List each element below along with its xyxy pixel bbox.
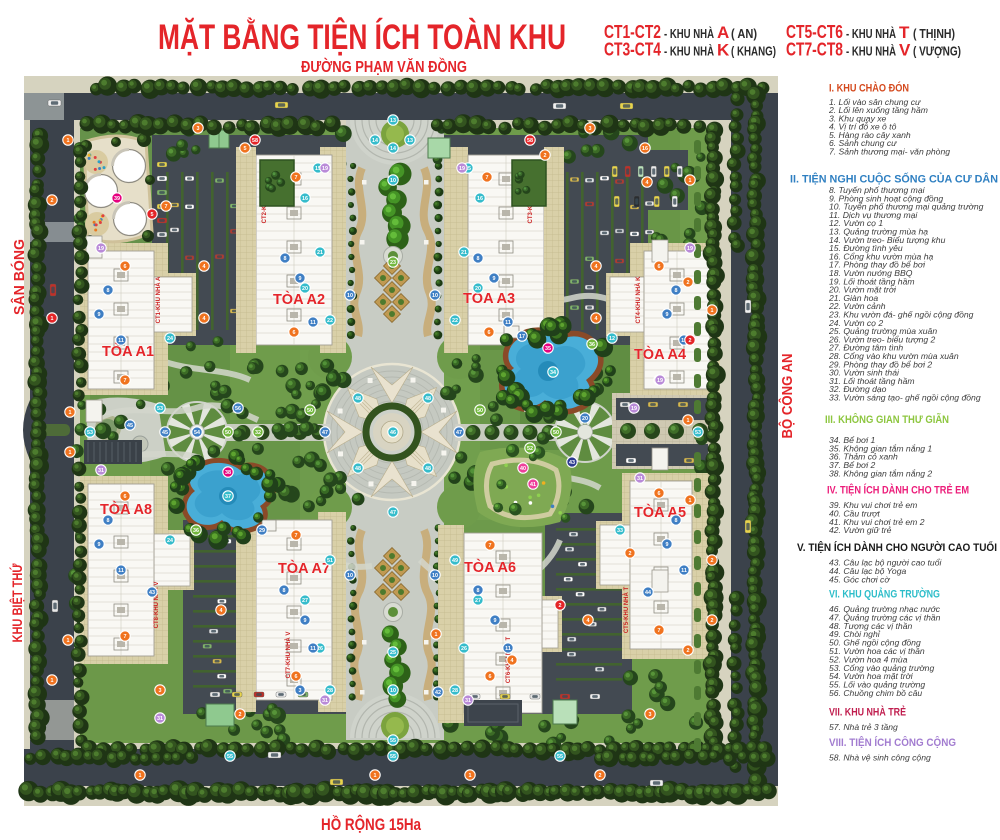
svg-text:HỒ RỘNG 15Ha: HỒ RỘNG 15Ha (321, 815, 422, 834)
svg-text:46: 46 (390, 430, 396, 436)
svg-text:36: 36 (589, 342, 595, 348)
svg-text:1: 1 (67, 138, 70, 144)
svg-text:KHU BIỆT THỨ: KHU BIỆT THỨ (10, 563, 25, 643)
svg-text:CT3-CT4: CT3-CT4 (604, 40, 661, 60)
svg-text:22: 22 (452, 318, 458, 324)
svg-text:4: 4 (587, 618, 590, 624)
svg-text:6: 6 (658, 264, 661, 270)
svg-text:TÒA A3: TÒA A3 (463, 289, 515, 307)
svg-text:32: 32 (255, 430, 261, 436)
svg-text:20: 20 (475, 286, 481, 292)
svg-text:2: 2 (51, 198, 54, 204)
svg-text:21: 21 (317, 250, 323, 256)
svg-text:26: 26 (461, 646, 467, 652)
svg-text:21: 21 (461, 250, 467, 256)
svg-text:T: T (899, 23, 910, 42)
svg-text:47: 47 (390, 510, 396, 516)
svg-text:II. TIỆN NGHI CUỘC SỐNG CỦA CƯ: II. TIỆN NGHI CUỘC SỐNG CỦA CƯ DÂN (790, 172, 998, 186)
svg-text:56: 56 (235, 406, 241, 412)
svg-text:11: 11 (310, 320, 316, 326)
svg-text:7: 7 (124, 634, 127, 640)
svg-text:48: 48 (425, 396, 431, 402)
svg-text:9: 9 (98, 542, 101, 548)
svg-text:TÒA A1: TÒA A1 (102, 342, 154, 360)
svg-text:38: 38 (225, 470, 231, 476)
svg-text:47: 47 (456, 430, 462, 436)
svg-text:SÂN BÓNG: SÂN BÓNG (10, 239, 28, 315)
svg-text:31: 31 (98, 468, 104, 474)
svg-text:36: 36 (193, 528, 199, 534)
svg-text:13: 13 (407, 138, 413, 144)
svg-text:6: 6 (124, 494, 127, 500)
svg-text:11: 11 (310, 646, 316, 652)
svg-text:3: 3 (649, 712, 652, 718)
svg-text:10: 10 (390, 178, 396, 184)
svg-text:8: 8 (107, 518, 110, 524)
svg-text:9: 9 (304, 618, 307, 624)
svg-text:31: 31 (637, 476, 643, 482)
svg-text:52: 52 (527, 446, 533, 452)
svg-text:ĐƯỜNG PHẠM VĂN ĐỒNG: ĐƯỜNG PHẠM VĂN ĐỒNG (301, 57, 467, 76)
svg-text:2: 2 (711, 558, 714, 564)
svg-text:- KHU NHÀ: - KHU NHÀ (664, 44, 714, 59)
svg-text:1: 1 (689, 498, 692, 504)
svg-text:1: 1 (51, 316, 54, 322)
svg-text:42. Vườn giữ trẻ: 42. Vườn giữ trẻ (829, 525, 892, 535)
svg-text:25: 25 (390, 650, 396, 656)
svg-text:1: 1 (69, 410, 72, 416)
svg-text:41: 41 (530, 482, 536, 488)
svg-text:45. Góc chơi cờ: 45. Góc chơi cờ (829, 574, 890, 584)
svg-text:1: 1 (689, 178, 692, 184)
svg-text:19: 19 (657, 378, 663, 384)
svg-text:20: 20 (302, 286, 308, 292)
svg-text:7: 7 (124, 378, 127, 384)
svg-text:24: 24 (167, 336, 173, 342)
svg-text:I. KHU CHÀO ĐÓN: I. KHU CHÀO ĐÓN (829, 82, 909, 95)
svg-text:13: 13 (390, 118, 396, 124)
svg-text:9: 9 (494, 618, 497, 624)
svg-text:- KHU NHÀ: - KHU NHÀ (846, 26, 896, 41)
svg-text:14: 14 (372, 138, 378, 144)
svg-text:7: 7 (295, 533, 298, 539)
svg-text:28: 28 (452, 688, 458, 694)
svg-text:56. Chuồng chim bồ câu: 56. Chuồng chim bồ câu (829, 688, 922, 698)
svg-text:( AN): ( AN) (731, 27, 757, 41)
svg-text:1: 1 (139, 773, 142, 779)
svg-text:45: 45 (127, 423, 133, 429)
svg-text:2: 2 (544, 153, 547, 159)
svg-text:50: 50 (307, 408, 313, 414)
svg-text:8: 8 (675, 288, 678, 294)
svg-text:6: 6 (489, 674, 492, 680)
svg-text:IV. TIỆN ÍCH DÀNH CHO TRẺ EM: IV. TIỆN ÍCH DÀNH CHO TRẺ EM (827, 484, 969, 497)
svg-text:3: 3 (159, 688, 162, 694)
svg-text:V. TIỆN ÍCH DÀNH CHO NGƯỜI CAO: V. TIỆN ÍCH DÀNH CHO NGƯỜI CAO TUỔI (797, 541, 997, 554)
svg-text:VIII. TIỆN ÍCH CÔNG CỘNG: VIII. TIỆN ÍCH CÔNG CỘNG (829, 736, 956, 749)
svg-text:17: 17 (519, 334, 525, 340)
svg-text:35: 35 (545, 346, 551, 352)
svg-text:9: 9 (666, 542, 669, 548)
svg-text:4: 4 (511, 658, 514, 664)
svg-text:28: 28 (327, 688, 333, 694)
svg-text:50: 50 (477, 408, 483, 414)
svg-text:8: 8 (477, 256, 480, 262)
svg-text:43: 43 (569, 460, 575, 466)
svg-text:11: 11 (505, 320, 511, 326)
svg-text:9: 9 (493, 276, 496, 282)
svg-text:2: 2 (687, 648, 690, 654)
svg-text:7: 7 (658, 628, 661, 634)
svg-text:11: 11 (118, 338, 124, 344)
svg-text:31: 31 (157, 716, 163, 722)
svg-text:5: 5 (244, 146, 247, 152)
svg-text:44: 44 (645, 590, 651, 596)
svg-text:19: 19 (687, 246, 693, 252)
svg-text:4: 4 (646, 180, 649, 186)
svg-text:53: 53 (87, 430, 93, 436)
svg-text:6: 6 (124, 264, 127, 270)
svg-text:2: 2 (239, 712, 242, 718)
svg-text:55: 55 (227, 754, 233, 760)
svg-text:CT7-CT8: CT7-CT8 (786, 40, 843, 60)
svg-text:58: 58 (252, 138, 258, 144)
svg-text:9: 9 (98, 312, 101, 318)
svg-text:CT5-KHU NHÀ T: CT5-KHU NHÀ T (623, 587, 630, 634)
svg-text:III. KHÔNG GIAN THƯ GIÃN: III. KHÔNG GIAN THƯ GIÃN (825, 413, 949, 426)
svg-text:14: 14 (390, 146, 396, 152)
svg-text:7: 7 (165, 204, 168, 210)
svg-text:16: 16 (302, 196, 308, 202)
svg-text:CT4-KHU NHÀ K: CT4-KHU NHÀ K (635, 276, 642, 324)
svg-text:53: 53 (695, 430, 701, 436)
svg-text:- KHU NHÀ: - KHU NHÀ (664, 26, 714, 41)
svg-text:1: 1 (435, 632, 438, 638)
svg-text:1: 1 (67, 638, 70, 644)
svg-text:( KHANG): ( KHANG) (731, 45, 776, 59)
svg-text:4: 4 (220, 608, 223, 614)
svg-text:48: 48 (355, 396, 361, 402)
svg-text:16: 16 (477, 196, 483, 202)
svg-text:1: 1 (51, 678, 54, 684)
svg-text:55: 55 (390, 738, 396, 744)
svg-text:5: 5 (151, 212, 154, 218)
svg-text:2: 2 (599, 773, 602, 779)
svg-text:45: 45 (162, 430, 168, 436)
svg-text:V: V (899, 41, 911, 60)
svg-text:10: 10 (390, 688, 396, 694)
svg-text:57. Nhà trẻ 3 tầng: 57. Nhà trẻ 3 tầng (829, 722, 898, 732)
svg-text:11: 11 (681, 568, 687, 574)
svg-text:CT7-KHU NHÀ V: CT7-KHU NHÀ V (285, 632, 292, 679)
svg-text:4: 4 (595, 264, 598, 270)
svg-text:7. Sảnh thương mại- văn phòng: 7. Sảnh thương mại- văn phòng (829, 146, 950, 156)
svg-text:VI. KHU QUẢNG TRƯỜNG: VI. KHU QUẢNG TRƯỜNG (829, 588, 940, 601)
svg-text:33. Vườn sáng tạo- ghế ngồi cộ: 33. Vườn sáng tạo- ghế ngồi cộng đồng (829, 393, 981, 403)
svg-text:29: 29 (259, 528, 265, 534)
svg-text:4: 4 (203, 264, 206, 270)
svg-text:A: A (717, 23, 729, 42)
svg-text:1: 1 (374, 773, 377, 779)
svg-text:9: 9 (299, 276, 302, 282)
svg-text:7: 7 (486, 175, 489, 181)
svg-text:31: 31 (322, 698, 328, 704)
svg-text:2: 2 (629, 551, 632, 557)
svg-text:19: 19 (631, 406, 637, 412)
svg-text:6: 6 (293, 330, 296, 336)
svg-text:43: 43 (149, 590, 155, 596)
svg-text:55: 55 (557, 754, 563, 760)
svg-text:2: 2 (711, 618, 714, 624)
svg-text:( THỊNH): ( THỊNH) (913, 27, 955, 41)
svg-text:8: 8 (284, 256, 287, 262)
svg-text:48: 48 (355, 466, 361, 472)
svg-text:40: 40 (520, 466, 526, 472)
svg-text:58: 58 (527, 138, 533, 144)
svg-text:27: 27 (302, 598, 308, 604)
svg-text:11: 11 (505, 646, 511, 652)
svg-text:7: 7 (489, 543, 492, 549)
svg-text:1: 1 (469, 773, 472, 779)
svg-text:8: 8 (283, 588, 286, 594)
svg-text:19: 19 (459, 166, 465, 172)
svg-text:34: 34 (550, 370, 556, 376)
svg-text:3: 3 (197, 126, 200, 132)
svg-text:2: 2 (687, 280, 690, 286)
svg-text:TÒA A7: TÒA A7 (278, 559, 330, 577)
svg-text:38. Không gian tắm nắng 2: 38. Không gian tắm nắng 2 (829, 468, 932, 478)
svg-text:55: 55 (390, 754, 396, 760)
svg-text:2: 2 (559, 603, 562, 609)
svg-text:8: 8 (477, 588, 480, 594)
svg-text:3: 3 (299, 688, 302, 694)
svg-text:VII. KHU NHÀ TRẺ: VII. KHU NHÀ TRẺ (829, 706, 906, 719)
svg-text:16: 16 (642, 146, 648, 152)
svg-text:54: 54 (194, 430, 200, 436)
svg-text:39: 39 (114, 196, 120, 202)
svg-text:22: 22 (327, 318, 333, 324)
svg-text:1: 1 (687, 418, 690, 424)
svg-text:4: 4 (595, 316, 598, 322)
svg-text:19: 19 (322, 166, 328, 172)
svg-text:53: 53 (157, 406, 163, 412)
svg-text:( VƯỢNG): ( VƯỢNG) (913, 45, 961, 59)
svg-text:9: 9 (666, 312, 669, 318)
svg-text:8: 8 (107, 288, 110, 294)
svg-text:58. Nhà vệ sinh công cộng: 58. Nhà vệ sinh công cộng (829, 753, 931, 763)
svg-text:10: 10 (347, 573, 353, 579)
svg-text:12: 12 (609, 336, 615, 342)
svg-text:1: 1 (69, 450, 72, 456)
svg-text:6: 6 (658, 491, 661, 497)
svg-text:37: 37 (225, 494, 231, 500)
svg-text:10: 10 (432, 293, 438, 299)
svg-text:50: 50 (553, 430, 559, 436)
svg-text:42: 42 (435, 690, 441, 696)
svg-text:24: 24 (167, 538, 173, 544)
svg-text:49: 49 (452, 558, 458, 564)
svg-text:11: 11 (118, 568, 124, 574)
svg-text:BỘ CÔNG AN: BỘ CÔNG AN (778, 354, 796, 439)
svg-text:TÒA A2: TÒA A2 (273, 290, 325, 308)
svg-text:33: 33 (617, 528, 623, 534)
svg-text:10: 10 (347, 293, 353, 299)
svg-text:7: 7 (295, 175, 298, 181)
svg-text:TÒA A4: TÒA A4 (634, 345, 686, 363)
svg-text:20: 20 (582, 416, 588, 422)
svg-text:23: 23 (390, 260, 396, 266)
svg-text:51: 51 (327, 558, 333, 564)
svg-text:50: 50 (225, 430, 231, 436)
svg-text:4: 4 (203, 316, 206, 322)
svg-text:48: 48 (425, 466, 431, 472)
svg-text:K: K (717, 41, 730, 60)
svg-text:2: 2 (689, 338, 692, 344)
svg-text:6: 6 (488, 330, 491, 336)
svg-text:3: 3 (589, 126, 592, 132)
svg-text:31: 31 (465, 698, 471, 704)
svg-text:8: 8 (675, 518, 678, 524)
svg-text:27: 27 (475, 598, 481, 604)
svg-text:MẶT BẰNG TIỆN ÍCH TOÀN KHU: MẶT BẰNG TIỆN ÍCH TOÀN KHU (158, 17, 566, 57)
svg-text:TÒA A6: TÒA A6 (464, 558, 516, 576)
svg-text:CT1-KHU NHÀ A: CT1-KHU NHÀ A (155, 276, 162, 323)
svg-text:1: 1 (711, 308, 714, 314)
svg-text:19: 19 (98, 246, 104, 252)
svg-text:10: 10 (432, 573, 438, 579)
svg-text:6: 6 (295, 674, 298, 680)
svg-text:- KHU NHÀ: - KHU NHÀ (846, 44, 896, 59)
svg-text:47: 47 (322, 430, 328, 436)
